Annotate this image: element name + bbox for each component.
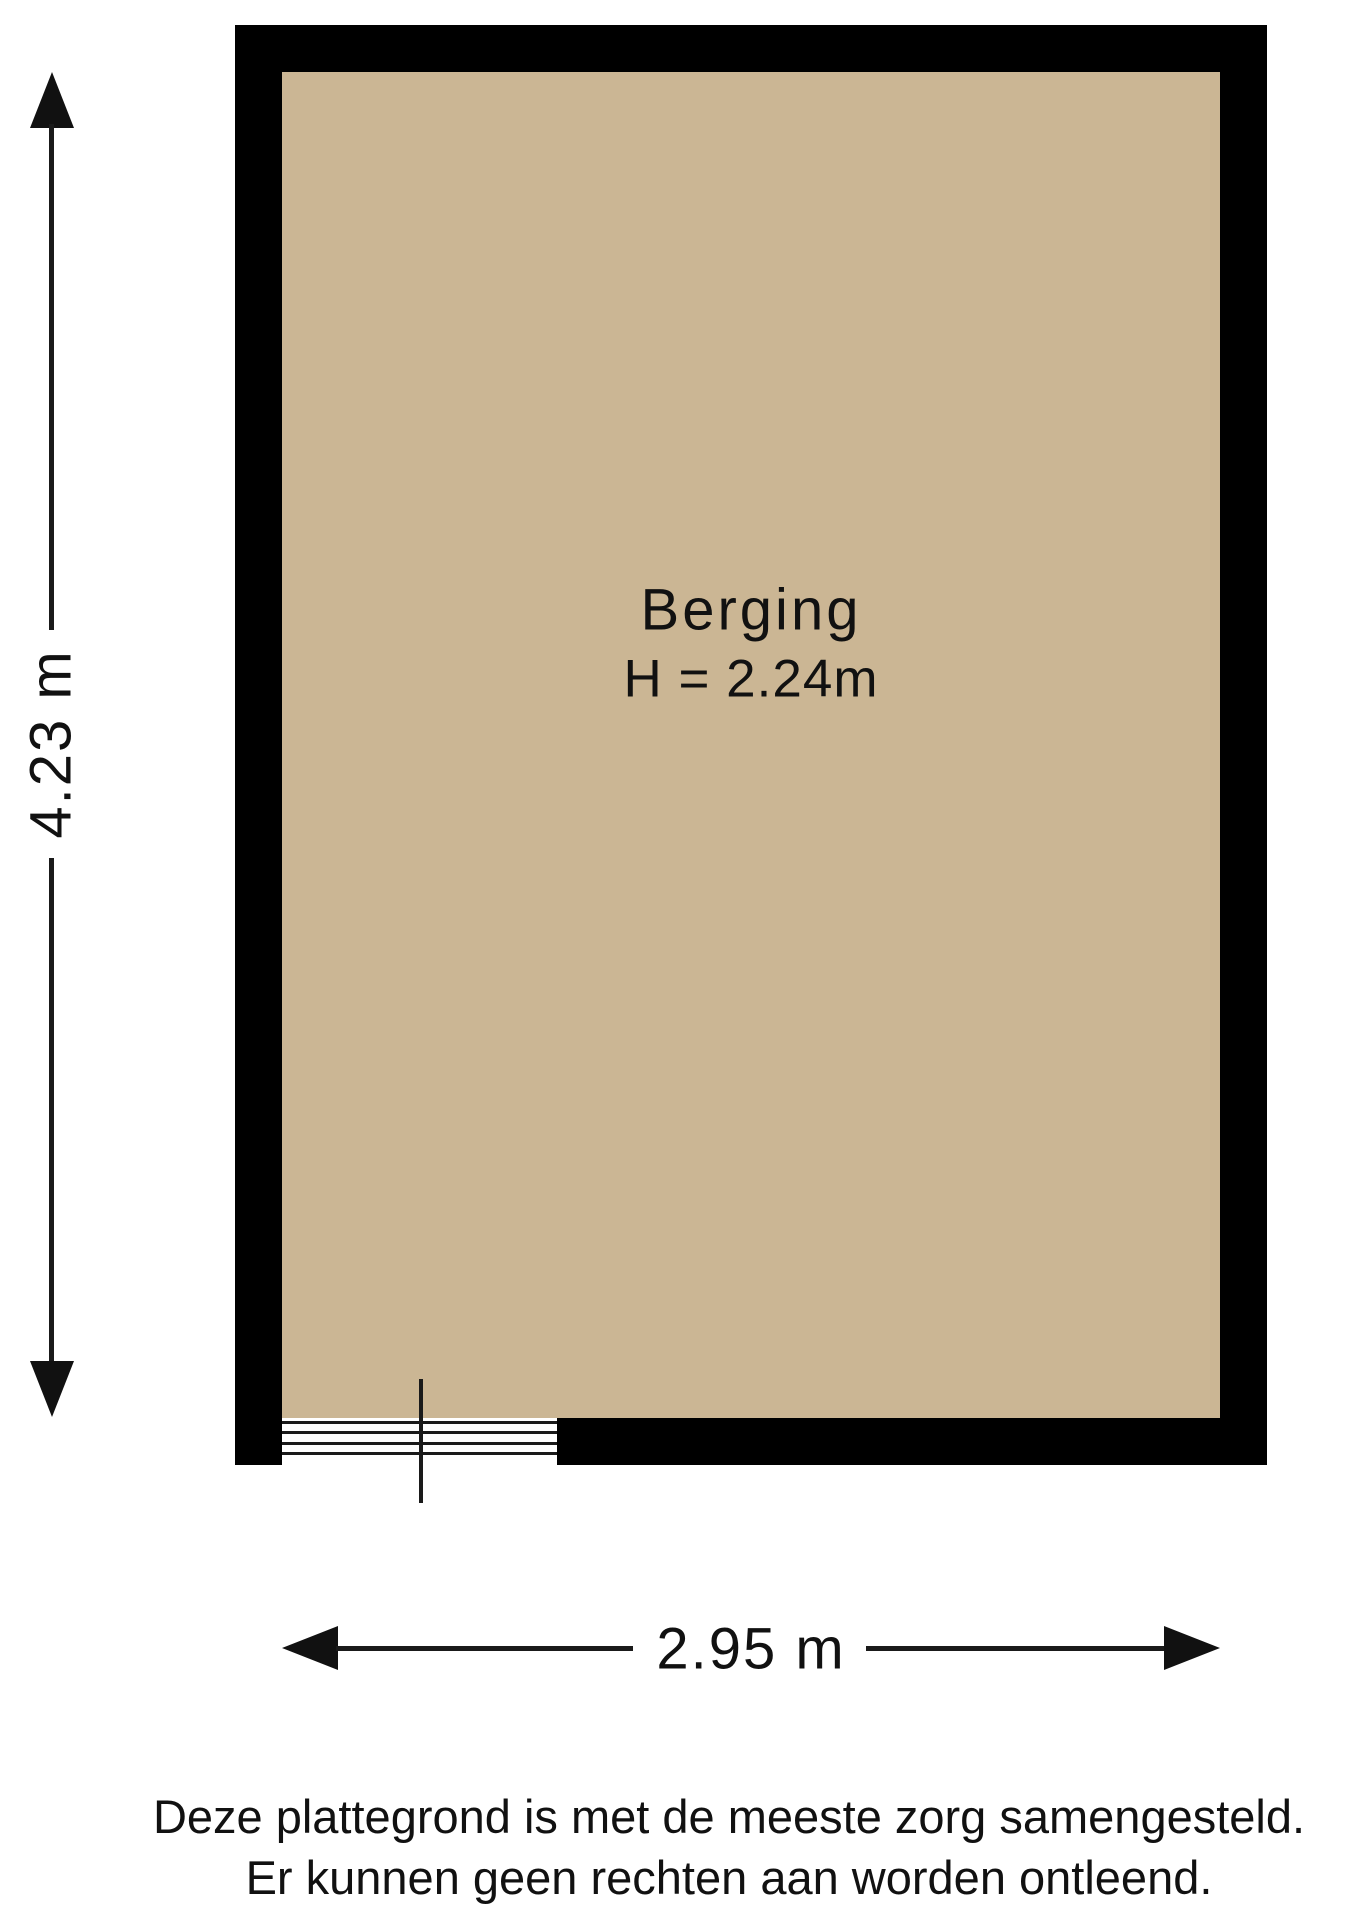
horizontal-dimension-label: 2.95 m [656, 1616, 845, 1683]
dimension-arrow-up-icon [30, 72, 74, 128]
horizontal-dimension-line-right [866, 1646, 1165, 1651]
room-name-label: Berging [641, 577, 862, 644]
disclaimer-text: Deze plattegrond is met de meeste zorg s… [153, 1786, 1305, 1908]
vertical-dimension-line-upper [49, 124, 54, 630]
vertical-dimension-label: 4.23 m [18, 649, 85, 838]
dimension-arrow-left-icon [282, 1626, 338, 1670]
dimension-arrow-right-icon [1164, 1626, 1220, 1670]
disclaimer-line-2: Er kunnen geen rechten aan worden ontlee… [153, 1847, 1305, 1908]
room-ceiling-height-label: H = 2.24m [624, 649, 879, 710]
horizontal-dimension-line-left [336, 1646, 633, 1651]
door-center-line [419, 1379, 423, 1503]
room-floor [282, 72, 1220, 1418]
dimension-arrow-down-icon [30, 1361, 74, 1417]
floorplan-canvas: 4.23 m Berging H = 2.24m 2.95 m Deze pla… [0, 0, 1358, 1920]
vertical-dimension-line-lower [49, 858, 54, 1361]
room-wall-outline [235, 25, 1267, 1465]
disclaimer-line-1: Deze plattegrond is met de meeste zorg s… [153, 1786, 1305, 1847]
